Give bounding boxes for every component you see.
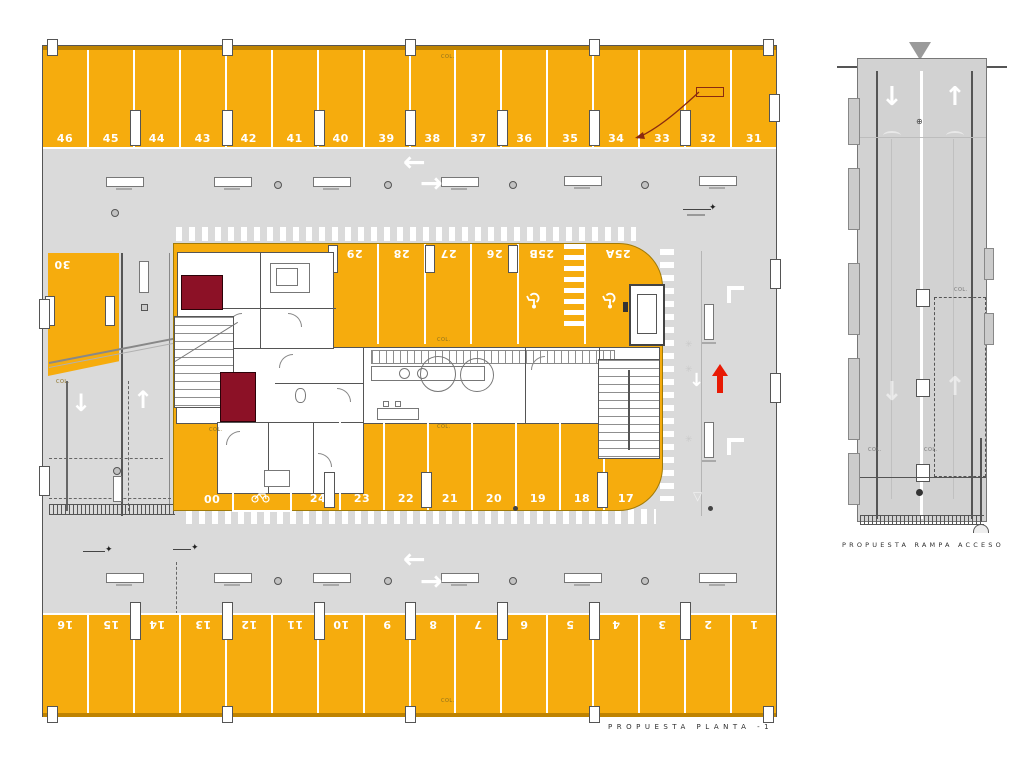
column-half-circle [973, 524, 989, 533]
grating-strip [860, 515, 984, 525]
column-marker [769, 94, 780, 122]
north-marker-icon: ✦ [709, 204, 717, 213]
column-marker [324, 472, 335, 508]
small-symbol [141, 304, 148, 311]
column-marker [314, 110, 325, 146]
light-fixture [214, 573, 252, 583]
light-fixture [214, 177, 252, 187]
corner-mark [727, 286, 744, 303]
parking-space-number: 13 [181, 619, 225, 630]
utility-room [181, 275, 223, 310]
stair-treads [371, 350, 615, 364]
marker-icon: ✦ [105, 546, 113, 555]
fixture-label [224, 188, 240, 190]
column-marker [425, 245, 435, 273]
column-marker [597, 472, 608, 508]
point-symbol [513, 506, 518, 511]
wall-line [837, 66, 859, 68]
equipment-screen [276, 268, 298, 286]
parking-space: 37 [454, 50, 500, 147]
light-fixture [564, 176, 602, 186]
pedestrian-stripes [176, 227, 636, 241]
drain-symbol [641, 577, 649, 585]
parking-space-number: 11 [273, 619, 317, 630]
parking-space: 45 [87, 50, 133, 147]
light-fixture [313, 177, 351, 187]
ramp-up-arrow: ↑ [133, 388, 153, 412]
parking-space-number: 28 [379, 248, 424, 259]
wall-notch [848, 98, 860, 145]
column-marker [763, 706, 774, 723]
parking-space-number: 41 [273, 133, 317, 144]
fixture-label [702, 342, 716, 344]
parking-space: 46 [43, 50, 87, 147]
column-marker [589, 602, 600, 640]
parking-space-number: 20 [473, 493, 515, 504]
wall-notch [848, 453, 860, 505]
door-swing [279, 354, 293, 368]
fixture-label [116, 584, 132, 586]
drain-symbol [509, 577, 517, 585]
arrow-stem [717, 375, 723, 393]
lane-edge-line [66, 381, 68, 511]
column-marker [497, 602, 508, 640]
column-label: COL. [56, 379, 70, 385]
column-label: COL. [441, 54, 455, 60]
fixture-label [323, 188, 339, 190]
fixture-label [574, 187, 590, 189]
parking-space-number: 38 [411, 133, 455, 144]
column-marker [916, 289, 930, 307]
parking-space-number: 42 [227, 133, 271, 144]
parking-space-number: 00 [204, 494, 220, 505]
triangle-symbol: ▽ [693, 490, 702, 502]
column-marker [763, 39, 774, 56]
parking-island: 29 28 27 26 25B 25A [173, 243, 663, 511]
drain-symbol [274, 577, 282, 585]
column-label: COL. [441, 698, 455, 704]
north-marker-line [683, 209, 711, 210]
column-marker [314, 602, 325, 640]
door-swing [337, 388, 351, 402]
island-lower-row: 24 23 22 21 20 19 18 17 [297, 422, 647, 510]
partition-wall [363, 348, 364, 423]
parking-space-number: 37 [456, 133, 500, 144]
column-marker [105, 296, 115, 326]
light-fixture [313, 573, 351, 583]
parking-space-number: 25B [519, 248, 564, 259]
bench [377, 408, 419, 420]
parking-space: 20 [471, 422, 515, 510]
parking-space-number: 3 [640, 619, 684, 630]
column-marker [770, 259, 781, 289]
light-fixture [564, 573, 602, 583]
symbol-circled-plus: ⊕ [916, 117, 923, 126]
guide-line [891, 139, 892, 499]
parking-space-number: 8 [411, 619, 455, 630]
down-arrow: ↓ [689, 372, 704, 390]
column-marker [222, 706, 233, 723]
tank-circle [460, 358, 494, 392]
annotation-leader-line [603, 88, 723, 148]
column-marker [47, 39, 58, 56]
fixture [704, 304, 714, 340]
column-marker [589, 110, 600, 146]
parking-space-number: 23 [341, 493, 383, 504]
parking-space-number: 16 [43, 619, 87, 630]
accessible-parking-icon [526, 292, 544, 310]
marker-line [173, 549, 191, 550]
arc-mark [883, 131, 901, 140]
parking-space: 28 [377, 244, 424, 344]
parking-space-number: 12 [227, 619, 271, 630]
fixture-label [709, 584, 725, 586]
parking-space-number: 2 [686, 619, 730, 630]
accessible-parking-icon [602, 292, 620, 310]
fixture [113, 476, 122, 502]
parking-space: 39 [363, 50, 409, 147]
corner-mark [727, 438, 744, 455]
light-fixture [699, 176, 737, 186]
small-furniture [383, 401, 389, 407]
parking-space: 7 [454, 615, 500, 713]
fixture [139, 261, 149, 293]
column-marker [405, 39, 416, 56]
parking-space: 5 [546, 615, 592, 713]
drain-symbol [509, 181, 517, 189]
partition-wall [260, 253, 261, 348]
parking-space: 23 [339, 422, 383, 510]
dashed-line [49, 458, 163, 459]
column-marker [497, 110, 508, 146]
parking-space-number: 40 [319, 133, 363, 144]
marker-icon: ✦ [191, 544, 199, 553]
wall-line [980, 438, 982, 522]
sink-symbol [399, 368, 410, 379]
parking-space-number: 15 [89, 619, 133, 630]
column-label: COL. [209, 427, 223, 433]
column-marker [39, 299, 50, 329]
parking-space: 13 [179, 615, 225, 713]
fixture-label [224, 584, 240, 586]
fixture [704, 422, 714, 458]
tank-circle [420, 356, 456, 392]
wall-notch [848, 168, 860, 230]
ramp-drawing: ↓ ↑ ⊕ ↓ ↑ COL. COL. COL. [845, 38, 1005, 543]
elevator-car [637, 294, 657, 334]
stair-divider [628, 370, 630, 450]
light-symbol: ✳ [685, 436, 693, 445]
parking-space: 43 [179, 50, 225, 147]
lane-edge-line [169, 253, 170, 511]
column-label: COL. [954, 287, 968, 293]
column-marker [680, 602, 691, 640]
column-label: COL. [437, 337, 451, 343]
wall-line [858, 477, 986, 478]
small-furniture [395, 401, 401, 407]
ramp-up-arrow: ↑ [944, 84, 966, 110]
ramp-grating [49, 504, 175, 515]
fixture-label [116, 188, 132, 190]
fixture-label [323, 584, 339, 586]
light-fixture [699, 573, 737, 583]
parking-space-number: 19 [517, 493, 559, 504]
parking-space: 9 [363, 615, 409, 713]
parking-space-number: 7 [456, 619, 500, 630]
parking-space: 35 [546, 50, 592, 147]
light-fixture [441, 573, 479, 583]
light-fixture [106, 177, 144, 187]
parking-space-number: 46 [43, 133, 87, 144]
partition-wall [525, 348, 526, 423]
parking-space: 41 [271, 50, 317, 147]
light-symbol: ✳ [685, 341, 693, 350]
parking-space-number: 35 [548, 133, 592, 144]
elevator [629, 284, 665, 346]
column-marker [39, 466, 50, 496]
fixture-label [702, 460, 716, 462]
parking-space-number: 6 [502, 619, 546, 630]
parking-space-number: 45 [89, 133, 133, 144]
ramp-down-arrow: ↓ [881, 84, 903, 110]
toilet-symbol [295, 388, 306, 403]
light-fixture [106, 573, 144, 583]
fixture-label [451, 188, 467, 190]
partition-wall [275, 383, 363, 384]
partition-wall [223, 308, 336, 309]
column-marker [222, 110, 233, 146]
light-fixture [441, 177, 479, 187]
parking-space: 21 [427, 422, 471, 510]
bicycle-icon [251, 491, 271, 503]
parking-space-number: 14 [135, 619, 179, 630]
parking-space-number: 31 [732, 133, 776, 144]
drawing-sheet: 46 45 44 43 42 41 40 39 38 37 36 35 [0, 0, 1024, 768]
parking-space-number: 39 [365, 133, 409, 144]
level-line [858, 137, 986, 138]
drain-symbol [916, 489, 923, 496]
drain-symbol [641, 181, 649, 189]
parking-space-number: 9 [365, 619, 409, 630]
meter-box [264, 470, 290, 487]
fixture-label [574, 584, 590, 586]
wall-notch [984, 313, 994, 345]
traffic-arrow-right: → [420, 568, 443, 595]
arc-mark [946, 131, 964, 140]
column-marker [130, 602, 141, 640]
parking-space: 16 [43, 615, 87, 713]
column-marker [405, 602, 416, 640]
column-marker [421, 472, 432, 508]
lane-dashed-line [128, 381, 129, 511]
small-symbol [623, 302, 628, 312]
parking-space: 11 [271, 615, 317, 713]
parking-space-number: 5 [548, 619, 592, 630]
crosswalk-stripes [564, 244, 584, 330]
parking-space-number: 29 [332, 248, 377, 259]
parking-space-number: 44 [135, 133, 179, 144]
ramp-down-arrow-faded: ↓ [881, 379, 903, 405]
wall-notch [984, 248, 994, 280]
column-marker [405, 110, 416, 146]
door-swing [226, 431, 240, 445]
wall-notch [848, 263, 860, 335]
stairs [598, 359, 660, 459]
column-marker [916, 379, 930, 397]
dashed-line [49, 498, 171, 499]
location-arrow [712, 364, 728, 394]
parking-space: 15 [87, 615, 133, 713]
marker-line [83, 551, 105, 552]
drain-symbol [274, 181, 282, 189]
column-marker [916, 464, 930, 482]
traffic-arrow-right: → [420, 170, 443, 197]
dashed-region [934, 297, 986, 477]
ramp-caption: PROPUESTA RAMPA ACCESO [842, 541, 1004, 549]
parking-space-number: 25A [586, 248, 650, 259]
column-marker [405, 706, 416, 723]
column-marker [130, 110, 141, 146]
parking-space-number: 43 [181, 133, 225, 144]
ramp-roadway: ↓ ↑ ⊕ ↓ ↑ COL. COL. COL. [857, 58, 987, 522]
column-marker [589, 706, 600, 723]
parking-space-number: 17 [605, 493, 647, 504]
drain-symbol [384, 577, 392, 585]
parking-space: 3 [638, 615, 684, 713]
parking-space-number: 36 [502, 133, 546, 144]
stair-diagonal [175, 322, 238, 362]
marker-label [687, 214, 705, 216]
fixture-label [451, 584, 467, 586]
wall-notch [848, 358, 860, 440]
column-marker [508, 245, 518, 273]
parking-space-number: 10 [319, 619, 363, 630]
column-marker [589, 39, 600, 56]
parking-space-number: 21 [429, 493, 471, 504]
dashed-line [176, 562, 177, 614]
parking-space: 1 [730, 615, 776, 713]
plan-caption: PROPUESTA PLANTA -1 [608, 723, 773, 731]
drain-symbol [113, 467, 121, 475]
parking-space: 2 [684, 615, 730, 713]
parking-space-number: 30 [54, 259, 70, 270]
column-label: COL. [868, 447, 882, 453]
bike-parking-bay [232, 484, 292, 512]
door-swing [288, 313, 302, 327]
column-marker [770, 373, 781, 403]
parking-space-number: 1 [732, 619, 776, 630]
drain-symbol [111, 209, 119, 217]
floor-plan: 46 45 44 43 42 41 40 39 38 37 36 35 [42, 45, 777, 717]
parking-space-number: 4 [594, 619, 638, 630]
point-symbol [708, 506, 713, 511]
column-marker [47, 706, 58, 723]
column-marker [222, 602, 233, 640]
parking-space: 29 [332, 244, 377, 344]
column-label: COL. [924, 447, 938, 453]
fixture-label [709, 187, 725, 189]
ramp-down-arrow: ↓ [71, 391, 91, 415]
utility-room [220, 372, 256, 422]
parking-space: 19 [515, 422, 559, 510]
drain-symbol [384, 181, 392, 189]
column-marker [222, 39, 233, 56]
